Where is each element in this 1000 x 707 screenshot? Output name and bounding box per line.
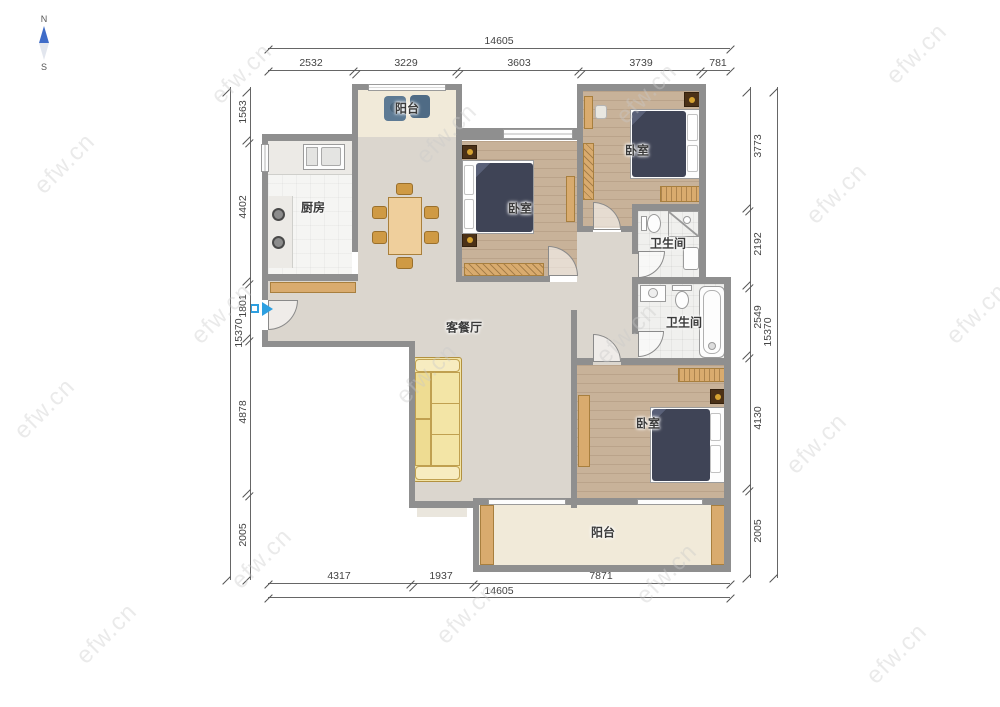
dim-label: 3739 (629, 57, 652, 69)
dim-label: 4878 (237, 400, 249, 423)
wall (262, 134, 358, 141)
wall (262, 274, 358, 281)
wall (632, 277, 638, 334)
dim-line-bottom-overall: 14605 (268, 597, 730, 598)
duvet (652, 409, 710, 481)
sofa-back (415, 372, 431, 466)
entry-arrow-icon (262, 302, 273, 316)
dim-tick (696, 67, 704, 75)
pillow (687, 145, 698, 172)
dining-table (388, 197, 422, 255)
dim-line-right-segments (750, 87, 751, 578)
dim-tick (264, 594, 272, 602)
dresser-top-right (660, 186, 700, 202)
balcony-cabinet (711, 505, 725, 565)
dim-line-left-overall (230, 87, 231, 580)
dim-tick (452, 67, 460, 75)
dim-line-top-segments: 2532 3229 3603 3739 781 (268, 70, 730, 71)
toilet-bowl (675, 291, 689, 309)
dim-tick (726, 67, 734, 75)
dim-label: 15370 (762, 317, 774, 346)
watermark-text: efw.cn (9, 373, 81, 445)
wall (571, 310, 577, 508)
dim-label: 2532 (299, 57, 322, 69)
dim-tick (349, 67, 357, 75)
nightstand (462, 233, 477, 247)
watermark-text: efw.cn (801, 158, 873, 230)
dim-tick (742, 281, 750, 289)
wall (577, 84, 706, 91)
dim-label: 781 (709, 57, 727, 69)
dim-tick (264, 580, 272, 588)
watermark-text: efw.cn (941, 278, 1000, 350)
pillow (464, 165, 474, 195)
dining-chair (424, 206, 439, 219)
wall (635, 204, 705, 211)
pillow (687, 114, 698, 141)
dresser-bottom (678, 368, 726, 382)
dim-line-bottom-segments: 4317 1937 7871 (268, 583, 730, 584)
toilet-bowl (647, 214, 661, 233)
dim-tick (242, 489, 250, 497)
window (637, 499, 703, 505)
dim-tick (264, 45, 272, 53)
dim-line-top-overall: 14605 (268, 48, 730, 49)
ac-ledge (417, 508, 467, 517)
dim-label: 1937 (429, 570, 452, 582)
wall (456, 140, 462, 282)
sofa-seats (431, 372, 460, 466)
wall (409, 501, 479, 508)
dim-tick (242, 136, 250, 144)
shower-drain (683, 216, 691, 224)
window (261, 144, 269, 172)
dim-tick (726, 594, 734, 602)
wall (724, 277, 731, 572)
wall (352, 84, 358, 140)
shoe-cabinet (270, 282, 356, 293)
dim-label: 2005 (752, 519, 764, 542)
dim-label: 1801 (237, 294, 249, 317)
room-label-bathroom-mid: 卫生间 (666, 314, 702, 331)
wall (699, 84, 706, 284)
dim-tick (242, 576, 250, 584)
dim-tick (222, 88, 230, 96)
dim-tick (742, 204, 750, 212)
dim-tick (769, 88, 777, 96)
wall (409, 341, 415, 508)
room-label-bathroom-top: 卫生间 (650, 235, 686, 252)
dim-tick (242, 88, 250, 96)
dim-tick (726, 580, 734, 588)
nightstand (462, 145, 477, 159)
window (503, 129, 573, 139)
wall (577, 226, 593, 232)
watermark-text: efw.cn (881, 18, 953, 90)
entry-marker-square (250, 304, 259, 313)
room-label-balcony-bottom: 阳台 (591, 524, 615, 541)
pillow (464, 199, 474, 229)
watermark-text: efw.cn (861, 618, 933, 690)
dining-chair (372, 206, 387, 219)
room-label-bedroom-top-right: 卧室 (625, 142, 649, 159)
wardrobe-top-right (583, 143, 594, 200)
sofa-armrest (415, 359, 460, 372)
compass-south-label: S (41, 62, 47, 72)
dining-chair (372, 231, 387, 244)
dining-chair (396, 257, 413, 269)
dim-label: 1563 (237, 100, 249, 123)
dim-tick (242, 277, 250, 285)
dim-line-right-overall (777, 87, 778, 578)
dim-label: 3229 (394, 57, 417, 69)
dim-tick (742, 574, 750, 582)
dim-tick (222, 576, 230, 584)
dim-line-left-segments (250, 87, 251, 580)
room-label-balcony-top: 阳台 (395, 100, 419, 117)
nightstand (684, 92, 700, 107)
floorplan-canvas: N S (0, 0, 1000, 707)
dim-label: 4317 (327, 570, 350, 582)
stove-burner-1 (272, 208, 285, 221)
compass-needle-south-icon (39, 43, 49, 60)
wall (473, 501, 479, 572)
dim-label: 2192 (752, 232, 764, 255)
duvet (476, 163, 533, 232)
compass: N S (30, 14, 60, 74)
floor-connector (456, 282, 577, 345)
window (488, 499, 566, 505)
dim-tick (574, 67, 582, 75)
wall (262, 341, 415, 347)
wall (632, 358, 730, 365)
wall (621, 358, 638, 365)
nightstand (710, 389, 725, 404)
bathtub-faucet (708, 342, 716, 350)
dining-chair (424, 231, 439, 244)
pillow (710, 445, 721, 473)
dim-label: 3773 (752, 134, 764, 157)
dim-label: 15370 (233, 318, 245, 347)
wall (352, 134, 358, 252)
tv-bench (566, 176, 575, 222)
kitchen-counter-left (268, 196, 293, 268)
dim-label: 4402 (237, 195, 249, 218)
watermark-text: efw.cn (29, 128, 101, 200)
shower (668, 211, 699, 237)
dim-label: 14605 (484, 585, 513, 597)
wardrobe-bottom (578, 395, 590, 467)
kitchen-sink-basin-right (321, 147, 341, 166)
room-label-living-dining: 客餐厅 (446, 319, 482, 336)
desk (584, 96, 593, 129)
dim-tick (769, 574, 777, 582)
dim-tick (742, 351, 750, 359)
wall (632, 277, 730, 284)
dim-label: 3603 (507, 57, 530, 69)
dim-label: 14605 (484, 35, 513, 47)
desk-chair (595, 105, 607, 119)
watermark-text: efw.cn (781, 408, 853, 480)
watermark-text: efw.cn (71, 598, 143, 670)
dim-tick (469, 580, 477, 588)
wall (577, 358, 593, 365)
dim-tick (726, 45, 734, 53)
room-label-bedroom-bottom: 卧室 (636, 415, 660, 432)
room-label-bedroom-mid: 卧室 (508, 200, 532, 217)
room-label-kitchen: 厨房 (301, 199, 325, 216)
dining-chair (396, 183, 413, 195)
dresser-mid-bedroom (464, 263, 544, 276)
dim-tick (406, 580, 414, 588)
wall (577, 91, 583, 232)
wall (456, 276, 550, 282)
compass-north-label: N (41, 14, 48, 24)
dim-tick (742, 484, 750, 492)
stove-burner-2 (272, 236, 285, 249)
dim-label: 4130 (752, 406, 764, 429)
vanity-basin (648, 288, 658, 298)
balcony-cabinet (480, 505, 494, 565)
wall (632, 204, 638, 254)
dim-label: 7871 (589, 570, 612, 582)
dim-tick (742, 88, 750, 96)
pillow (710, 413, 721, 441)
sofa-armrest (415, 466, 460, 480)
compass-needle-north-icon (39, 26, 49, 43)
window (368, 84, 446, 91)
kitchen-sink-basin-left (306, 147, 318, 166)
dim-label: 2005 (237, 523, 249, 546)
dim-tick (264, 67, 272, 75)
